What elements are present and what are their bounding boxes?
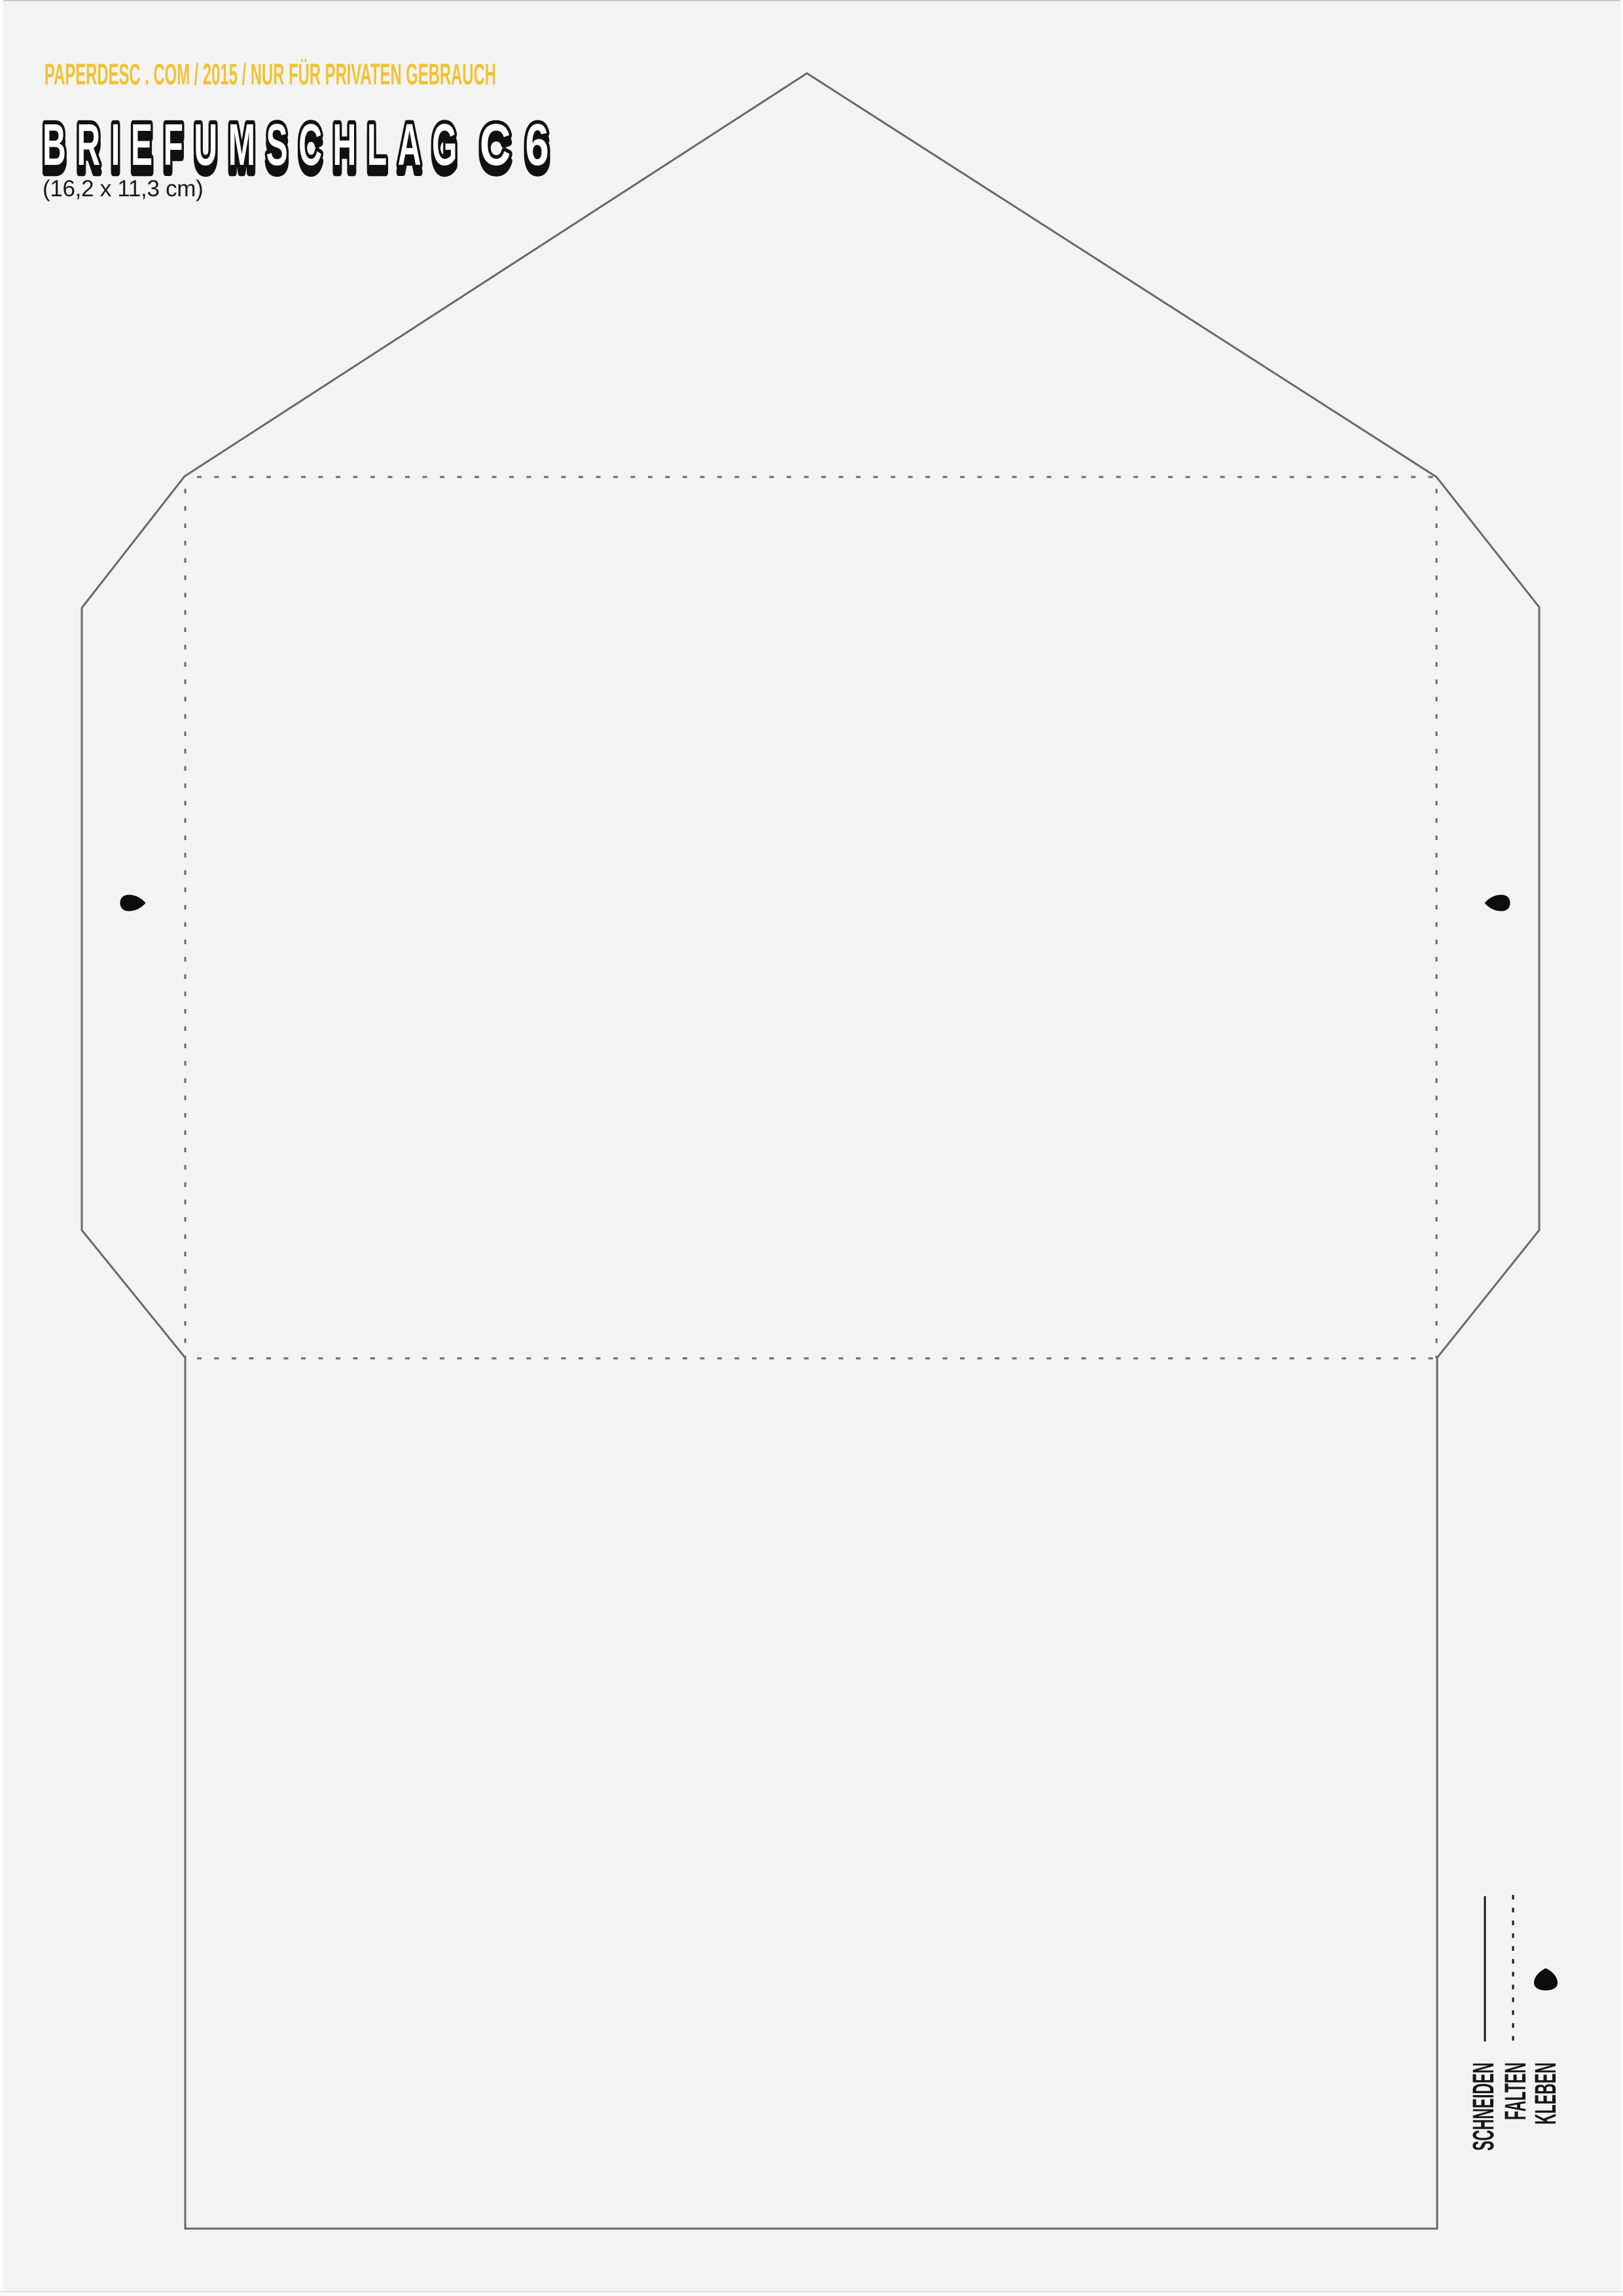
svg-text:BRIEFUMSCHLAG: BRIEFUMSCHLAG	[43, 112, 468, 177]
svg-text:PAPERDESC . COM / 2015 / NUR F: PAPERDESC . COM / 2015 / NUR FÜR PRIVATE…	[45, 58, 496, 91]
svg-text:FALTEN: FALTEN	[1499, 2062, 1532, 2120]
svg-text:KLEBEN: KLEBEN	[1529, 2062, 1562, 2125]
svg-text:(16,2 x 11,3 cm): (16,2 x 11,3 cm)	[43, 176, 203, 202]
svg-text:SCHNEIDEN: SCHNEIDEN	[1467, 2062, 1500, 2151]
svg-text:C6: C6	[480, 112, 563, 177]
